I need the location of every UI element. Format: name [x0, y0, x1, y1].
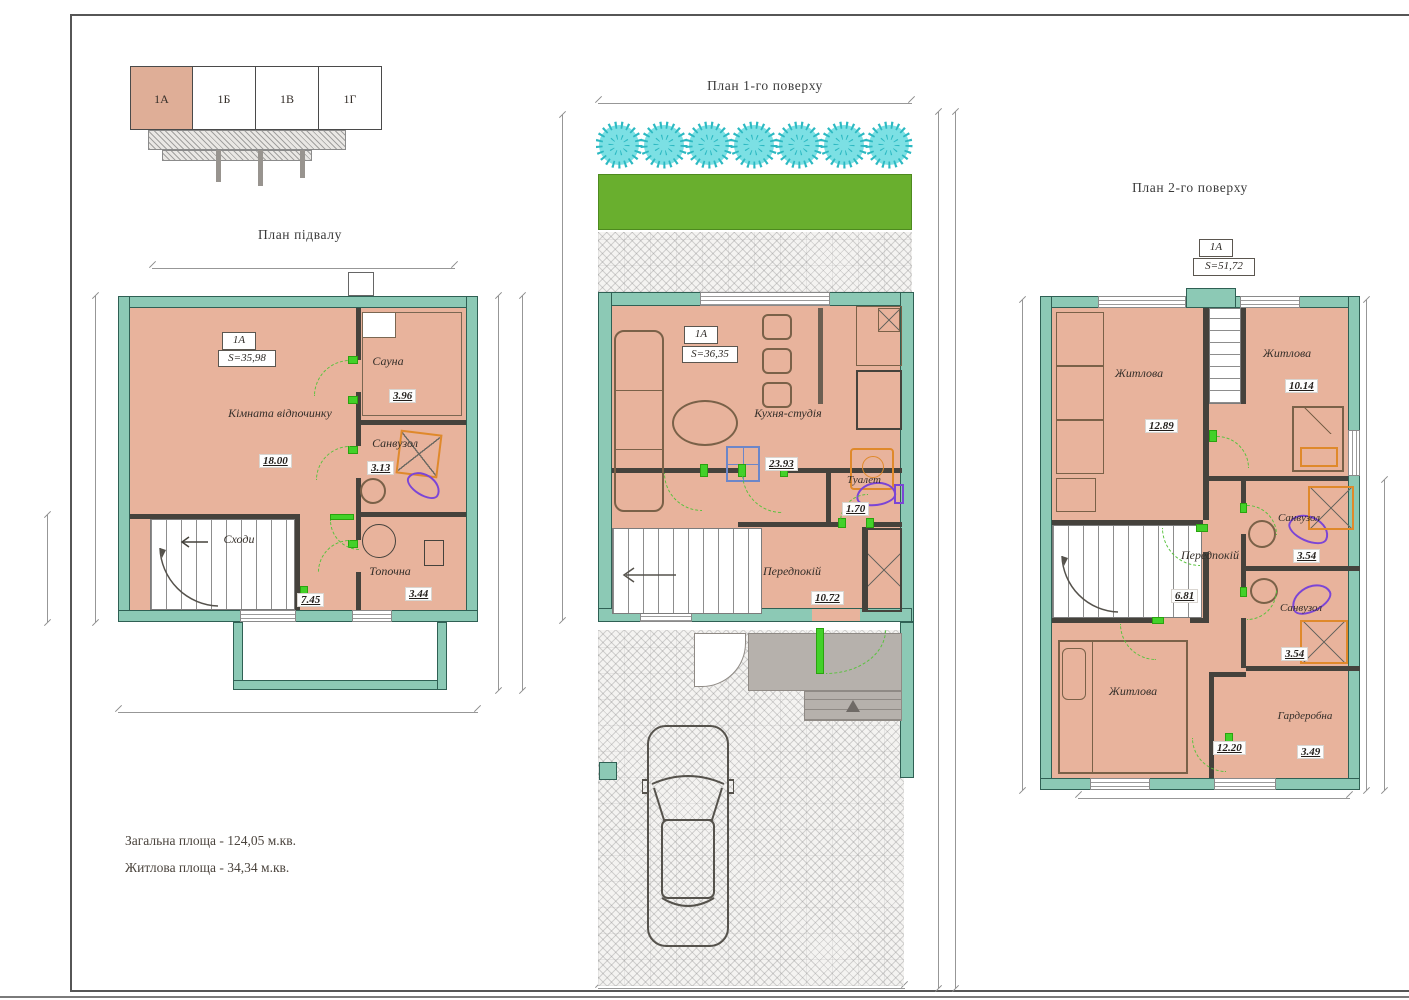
room-area: 10.72: [812, 592, 843, 604]
dimension-line: [1022, 300, 1023, 790]
room-area: 3.54: [1282, 648, 1307, 660]
room-label: Житлова: [1104, 366, 1174, 381]
room-area: 12.20: [1214, 742, 1245, 754]
bar-counter-icon: [818, 308, 823, 404]
room-label: Сауна: [364, 354, 412, 369]
room-area: 6.81: [1172, 590, 1197, 602]
floor2-window: [1090, 778, 1150, 790]
door-marker: [348, 396, 358, 404]
door-marker: [816, 628, 824, 674]
keyplan-site-strip2: [162, 150, 312, 161]
partition: [356, 425, 361, 446]
dimension-line: [1078, 798, 1350, 799]
partition: [826, 473, 831, 527]
keyplan-cell-1v: 1В: [256, 66, 319, 130]
basement-wall-left: [118, 296, 130, 622]
room-area: 18.00: [260, 455, 291, 467]
keyplan-post: [258, 150, 263, 186]
dimension-line: [598, 103, 912, 104]
sink-icon: [360, 478, 386, 504]
floor1-door-gap: [812, 609, 860, 621]
bar-stool-icon: [762, 348, 792, 374]
floor2-wall-right: [1348, 296, 1360, 790]
unit-area-tag: S=35,98: [218, 350, 276, 367]
toilet-tank-icon: [894, 484, 904, 504]
partition: [1052, 618, 1152, 623]
lightwell-wall: [233, 680, 447, 690]
keyplan-post: [300, 150, 305, 178]
bar-stool-icon: [762, 314, 792, 340]
tree-icon: [599, 125, 909, 165]
keyplan-cell-1a: 1А: [130, 66, 193, 130]
dimension-line: [1366, 300, 1367, 790]
partition: [870, 522, 902, 527]
partition: [1241, 571, 1246, 587]
floor2-window: [1240, 296, 1300, 308]
boiler-icon: [362, 524, 396, 558]
dimension-line: [498, 296, 499, 690]
room-label: Передпокій: [1168, 548, 1252, 563]
partition: [356, 308, 361, 360]
floor1-title: План 1-го поверху: [680, 78, 850, 94]
room-area: 3.96: [390, 390, 415, 402]
floor1-wall-right: [900, 292, 914, 622]
room-label: Гардеробна: [1262, 710, 1348, 722]
partition: [1246, 666, 1360, 671]
lightwell-wall: [437, 622, 447, 690]
partition: [1190, 618, 1209, 623]
dining-table-icon: [672, 400, 738, 446]
plot-wall-right: [900, 622, 914, 778]
room-label: Сходи: [210, 532, 268, 547]
floor2-title: План 2-го поверху: [1100, 180, 1280, 196]
room-area: 12.89: [1146, 420, 1177, 432]
dimension-line: [118, 712, 478, 713]
basement-wall-right: [466, 296, 478, 622]
chimney-shaft: [348, 272, 374, 296]
room-area: 3.13: [368, 462, 393, 474]
room-area: 3.49: [1298, 746, 1323, 758]
dimension-line: [1384, 480, 1385, 790]
floor1-window: [700, 292, 830, 306]
partition: [1209, 476, 1348, 481]
plan-sheet: { "keyplan": { "cells": [ {"label": "1А"…: [0, 0, 1409, 1000]
room-label: Кімната відпочинку: [210, 406, 350, 421]
unit-tag: 1А: [684, 326, 718, 344]
floor2-window: [1098, 296, 1186, 308]
stairs-arrow-icon: [618, 560, 678, 590]
summary-total: Загальна площа - 124,05 м.кв.: [125, 833, 296, 849]
pillow-icon: [1062, 648, 1086, 700]
stairs-arrow-icon: [178, 536, 210, 548]
stairs-spiral-icon: [1056, 528, 1122, 616]
keyplan-post: [216, 150, 221, 182]
partition: [356, 512, 466, 517]
sofa-icon: [614, 330, 664, 512]
room-label: Житлова: [1098, 684, 1168, 699]
room-label: Санвузол: [1266, 602, 1336, 614]
dimension-line: [152, 268, 455, 269]
room-label: Передпокій: [752, 564, 832, 579]
wardrobe-icon: [1056, 312, 1104, 366]
fridge-icon: [856, 370, 902, 430]
room-label: Санвузол: [364, 436, 426, 451]
keyplan-cell-1b: 1Б: [193, 66, 256, 130]
room-area: 10.14: [1286, 380, 1317, 392]
partition: [1209, 672, 1246, 677]
kitchen-sink-icon: [878, 308, 900, 332]
keyplan-site-strip: [148, 130, 346, 150]
summary-living: Житлова площа - 34,34 м.кв.: [125, 860, 289, 876]
basement-wall-bottom: [118, 610, 478, 622]
basement-window: [240, 610, 296, 622]
floor2-window: [1214, 778, 1276, 790]
unit-area-tag: S=51,72: [1193, 258, 1255, 276]
equipment-box: [424, 540, 444, 566]
unit-tag: 1А: [1199, 239, 1233, 257]
door-marker: [1209, 430, 1217, 442]
dimension-line: [955, 112, 956, 988]
room-area: 3.44: [406, 588, 431, 600]
door-marker: [1240, 587, 1247, 597]
steps-up-arrow-icon: [846, 700, 860, 712]
dimension-line: [95, 296, 96, 622]
dimension-line: [598, 988, 905, 989]
room-label: Житлова: [1252, 346, 1322, 361]
desk-icon: [1056, 478, 1096, 512]
floor2-wall-bottom: [1040, 778, 1360, 790]
room-label: Кухня-студія: [740, 406, 836, 421]
room-area: 7.45: [298, 594, 323, 606]
dimension-line: [562, 115, 563, 620]
partition: [1241, 618, 1246, 668]
shaft-box: [866, 528, 902, 612]
floor2-balcony-pier: [1186, 288, 1236, 308]
car-icon: [642, 722, 734, 950]
door-marker: [1152, 617, 1164, 624]
basement-window: [352, 610, 392, 622]
door-marker: [1240, 503, 1247, 513]
dimension-line: [938, 112, 939, 988]
basement-wall-top: [118, 296, 478, 308]
sauna-bench: [362, 312, 396, 338]
paving: [598, 232, 912, 292]
unit-area-tag: S=36,35: [682, 346, 738, 363]
room-label: Топочна: [360, 564, 420, 579]
wardrobe-icon: [1056, 420, 1104, 474]
floor2-wall-left: [1040, 296, 1052, 790]
upper-flight-stairs: [1209, 308, 1241, 404]
keyplan-cell-1g: 1Г: [319, 66, 382, 130]
partition: [1241, 308, 1246, 404]
partition: [1241, 481, 1246, 503]
partition: [356, 420, 466, 425]
room-area: 3.54: [1294, 550, 1319, 562]
trees-row: [596, 112, 914, 178]
photo-edge-line: [0, 996, 1409, 998]
floor1-wall-left: [598, 292, 612, 622]
bar-stool-icon: [762, 382, 792, 408]
yard-marker: [599, 762, 617, 780]
room-label: Туалет: [836, 474, 892, 486]
lawn: [598, 174, 912, 230]
floor2-window: [1348, 430, 1360, 476]
room-area: 1.70: [843, 503, 868, 515]
partition: [738, 522, 840, 527]
room-label: Санвузол: [1264, 512, 1334, 524]
keyplan: 1А 1Б 1В 1Г: [130, 66, 382, 130]
partition: [1241, 566, 1360, 571]
room-area: 23.93: [766, 458, 797, 470]
basement-title: План підвалу: [220, 227, 380, 243]
side-table-icon: [1300, 447, 1338, 467]
wardrobe-icon: [1056, 366, 1104, 420]
unit-tag: 1А: [222, 332, 256, 350]
dimension-line: [47, 515, 48, 622]
dimension-line: [522, 296, 523, 690]
